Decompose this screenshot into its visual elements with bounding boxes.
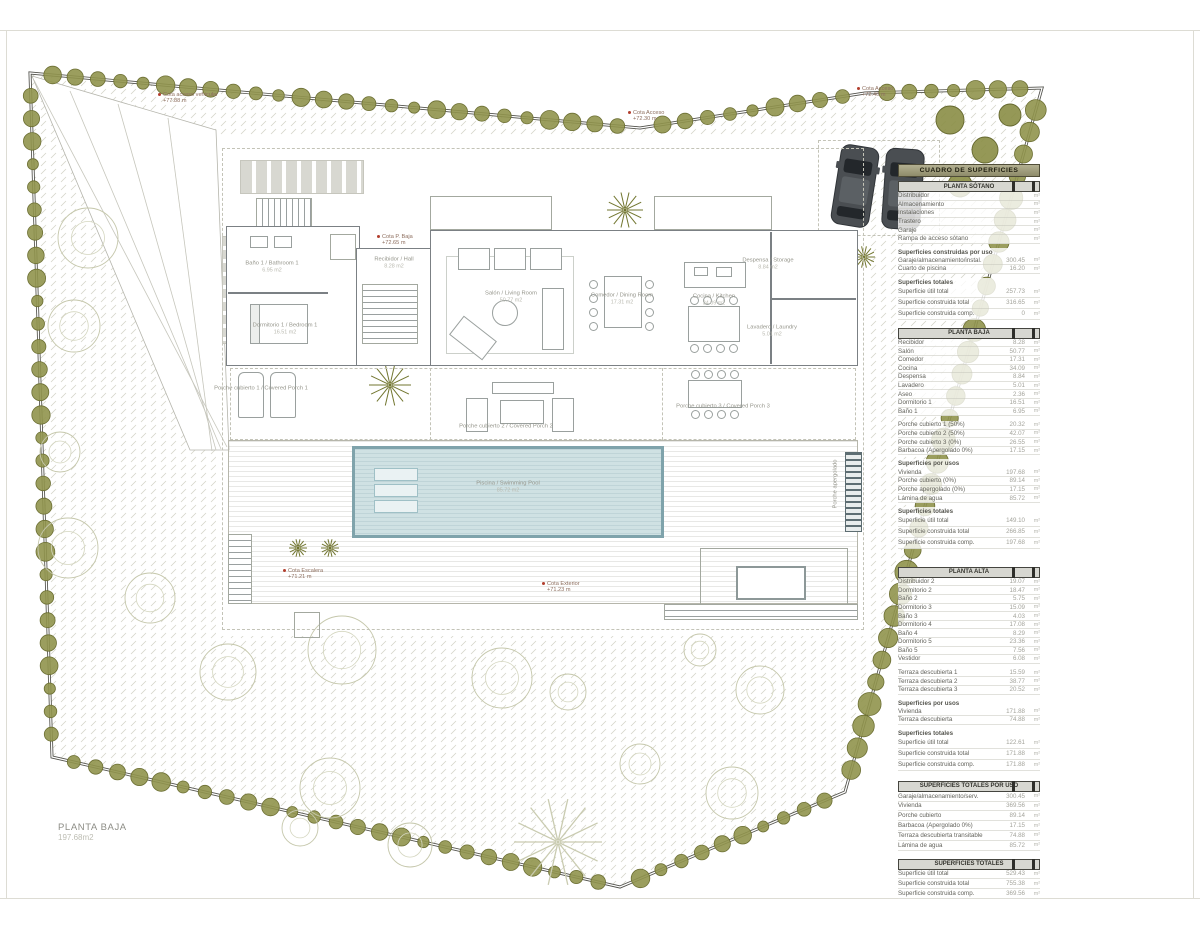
- row-value: 257.73: [995, 288, 1025, 295]
- sheet-edge-left: [6, 30, 7, 898]
- table-row: Dormitorio 523.36m²: [898, 638, 1040, 647]
- chair-icon: [589, 322, 598, 331]
- chair-icon: [730, 370, 739, 379]
- table-row: Terraza descubierta 115.59m²: [898, 669, 1040, 678]
- hedge-tree-icon: [521, 112, 533, 124]
- room-name: Cocina / Kitchen: [693, 293, 735, 300]
- row-value: 755.38: [995, 880, 1025, 887]
- row-label: Distribuidor 2: [898, 578, 995, 585]
- plan-title: PLANTA BAJA 197.68m2: [58, 822, 127, 842]
- row-value: 19.07: [995, 578, 1025, 585]
- room-label-apergolado: Porche apergolado: [833, 460, 840, 509]
- hedge-tree-icon: [474, 106, 489, 121]
- hedge-tree-icon: [817, 793, 832, 808]
- surfaces-table-title: CUADRO DE SUPERFICIES: [898, 164, 1040, 177]
- hedge-tree-icon: [694, 845, 709, 860]
- row-label: Lámina de agua: [898, 495, 995, 502]
- row-unit: m²: [1025, 340, 1040, 346]
- hedge-tree-icon: [339, 94, 354, 109]
- table-subheader: Superficies totales: [898, 729, 1040, 738]
- row-value: 85.72: [995, 495, 1025, 502]
- cota-marker-icon: [542, 582, 545, 585]
- row-value: 171.88: [995, 708, 1025, 715]
- row-unit: m²: [1025, 842, 1040, 848]
- hedge-tree-icon: [114, 74, 127, 87]
- row-value: 149.10: [995, 517, 1025, 524]
- tree-icon: [936, 106, 964, 134]
- row-unit: m²: [1025, 579, 1040, 585]
- row-label: Vivienda: [898, 469, 995, 476]
- hedge-tree-icon: [89, 760, 103, 774]
- hedge-tree-icon: [198, 785, 211, 798]
- chair-icon: [729, 344, 738, 353]
- row-unit: m²: [1025, 529, 1040, 535]
- table-row: Vestidor6.08m²: [898, 655, 1040, 664]
- row-value: 89.14: [995, 477, 1025, 484]
- cota-acceso-vehicular: Cota acceso vehicular+77.88 m: [158, 92, 218, 105]
- row-label: Superficie construida comp.: [898, 310, 995, 317]
- row-unit: m²: [1025, 656, 1040, 662]
- row-value: 18.47: [995, 587, 1025, 594]
- row-unit: m²: [1025, 793, 1040, 799]
- table-row: Superficie construida total316.65m²: [898, 298, 1040, 309]
- row-unit: m²: [1025, 813, 1040, 819]
- row-label: Superficie construida total: [898, 750, 995, 757]
- coffee-table: [492, 300, 518, 326]
- hedge-tree-icon: [44, 727, 58, 741]
- hedge-tree-icon: [747, 105, 758, 116]
- planter-box: [654, 196, 772, 230]
- room-name: Porche cubierto 3 / Covered Porch 3: [676, 404, 770, 411]
- row-unit: m²: [1025, 751, 1040, 757]
- row-value: 20.32: [995, 421, 1025, 428]
- hedge-tree-icon: [385, 99, 398, 112]
- chair-icon: [589, 308, 598, 317]
- row-label: Aseo: [898, 391, 995, 398]
- cota-acceso-1: Cota Acceso+72.30 m: [628, 110, 664, 123]
- table-section-header: PLANTA SÓTANO: [898, 181, 1040, 192]
- row-unit: m²: [1025, 219, 1040, 225]
- row-label: Garaje: [898, 227, 995, 234]
- chair-icon: [704, 410, 713, 419]
- row-unit: m²: [1025, 639, 1040, 645]
- row-unit: m²: [1025, 430, 1040, 436]
- interior-wall: [228, 292, 328, 294]
- row-value: 8.28: [995, 339, 1025, 346]
- row-unit: m²: [1025, 193, 1040, 199]
- room-name: Porche cubierto 1 / Covered Porch 1: [214, 386, 308, 393]
- row-label: Superficie útil total: [898, 517, 995, 524]
- table-row: Superficie construida total171.88m²: [898, 749, 1040, 760]
- chair-icon: [730, 410, 739, 419]
- pool-step: [374, 500, 418, 513]
- row-unit: m²: [1025, 236, 1040, 242]
- hedge-tree-icon: [1012, 81, 1028, 97]
- hedge-tree-icon: [564, 113, 581, 130]
- row-unit: m²: [1025, 478, 1040, 484]
- hedge-tree-icon: [90, 72, 105, 87]
- cota-marker-icon: [158, 93, 161, 96]
- chair-icon: [703, 344, 712, 353]
- table-row: Baño 16.95m²: [898, 408, 1040, 417]
- cota-escalera: Cota Escalera+71.21 m: [283, 568, 323, 581]
- sofa: [530, 248, 562, 270]
- row-value: 16.51: [995, 399, 1025, 406]
- row-unit: m²: [1025, 871, 1040, 877]
- row-label: Baño 1: [898, 408, 995, 415]
- stairwell: [362, 284, 418, 344]
- row-unit: m²: [1025, 622, 1040, 628]
- table-subheader: Superficies por usos: [898, 699, 1040, 708]
- tree-icon: [972, 137, 998, 163]
- row-value: 8.29: [995, 630, 1025, 637]
- room-label-cocina: Cocina / Kitchen34.09 m2: [693, 293, 735, 306]
- chair-icon: [690, 344, 699, 353]
- row-unit: m²: [1025, 613, 1040, 619]
- room-area: 8.84 m2: [742, 264, 793, 270]
- hedge-tree-icon: [32, 340, 46, 354]
- table-row: Vivienda171.88m²: [898, 708, 1040, 717]
- hedge-tree-icon: [28, 247, 45, 264]
- row-label: Comedor: [898, 356, 995, 363]
- table-row: Superficie útil total529.43m²: [898, 870, 1040, 880]
- hedge-tree-icon: [27, 159, 38, 170]
- row-unit: m²: [1025, 408, 1040, 414]
- row-unit: m²: [1025, 391, 1040, 397]
- table-row: Dormitorio 417.08m²: [898, 621, 1040, 630]
- sheet-edge-top: [0, 30, 1200, 31]
- shower: [330, 234, 356, 260]
- hedge-tree-icon: [587, 116, 603, 132]
- table-subheader: Superficies por usos: [898, 459, 1040, 468]
- hedge-tree-icon: [879, 628, 898, 647]
- table-row: Recibidor8.28m²: [898, 339, 1040, 348]
- row-label: Cocina: [898, 365, 995, 372]
- room-area: 34.09 m2: [693, 300, 735, 306]
- row-value: 17.15: [995, 822, 1025, 829]
- row-unit: m²: [1025, 670, 1040, 676]
- row-label: Porche cubierto: [898, 812, 995, 819]
- hedge-tree-icon: [631, 869, 650, 888]
- row-value: 171.88: [995, 761, 1025, 768]
- row-label: Dormitorio 5: [898, 638, 995, 645]
- row-value: 6.95: [995, 408, 1025, 415]
- table-row: Garajem²: [898, 226, 1040, 235]
- row-unit: m²: [1025, 740, 1040, 746]
- table-row: Distribuidor 219.07m²: [898, 578, 1040, 587]
- row-label: Superficie útil total: [898, 870, 995, 877]
- row-value: 74.88: [995, 716, 1025, 723]
- hedge-tree-icon: [591, 875, 606, 890]
- row-value: 17.31: [995, 356, 1025, 363]
- row-label: Porche cubierto 2 (50%): [898, 430, 995, 437]
- table-row: Lámina de agua85.72m²: [898, 841, 1040, 851]
- pool-step: [374, 484, 418, 497]
- hedge-tree-icon: [362, 97, 376, 111]
- row-unit: m²: [1025, 357, 1040, 363]
- row-label: Superficie construida comp.: [898, 890, 995, 897]
- hedge-tree-icon: [734, 826, 752, 844]
- floor-plan-sheet: { "sheet": {"title": "PLANTA BAJA", "are…: [0, 0, 1200, 927]
- table-row: Porche cubierto 2 (50%)42.07m²: [898, 430, 1040, 439]
- hedge-tree-icon: [241, 794, 257, 810]
- hedge-tree-icon: [292, 88, 310, 106]
- row-unit: m²: [1025, 300, 1040, 306]
- row-unit: m²: [1025, 495, 1040, 501]
- hedge-tree-icon: [273, 90, 285, 102]
- row-value: 16.20: [995, 265, 1025, 272]
- row-value: 369.56: [995, 890, 1025, 897]
- row-value: 17.15: [995, 486, 1025, 493]
- hedge-tree-icon: [67, 69, 83, 85]
- row-unit: m²: [1025, 518, 1040, 524]
- hedge-tree-icon: [1020, 122, 1039, 141]
- table-row: Aseo2.36m²: [898, 390, 1040, 399]
- hedge-tree-icon: [966, 81, 985, 100]
- table-row: Porche apergolado (0%)17.15m²: [898, 486, 1040, 495]
- row-value: 15.09: [995, 604, 1025, 611]
- cota-marker-icon: [377, 235, 380, 238]
- cota-marker-icon: [628, 111, 631, 114]
- chair-icon: [589, 280, 598, 289]
- room-label-lavadero: Lavadero / Laundry5.01 m2: [747, 324, 797, 337]
- row-unit: m²: [1025, 400, 1040, 406]
- room-area: 16.51 m2: [253, 329, 318, 335]
- room-label-bano1: Baño 1 / Bathroom 16.95 m2: [245, 260, 298, 273]
- hedge-tree-icon: [23, 111, 39, 127]
- hedge-tree-icon: [989, 81, 1006, 98]
- room-label-despensa: Despensa / Storage8.84 m2: [742, 257, 793, 270]
- porch-divider: [662, 368, 663, 440]
- table-subheader: Superficies totales: [898, 507, 1040, 516]
- row-label: Porche apergolado (0%): [898, 486, 995, 493]
- hedge-tree-icon: [428, 101, 446, 119]
- hedge-tree-icon: [44, 66, 62, 84]
- row-label: Rampa de acceso sótano: [898, 235, 995, 242]
- chair-icon: [645, 280, 654, 289]
- hedge-tree-icon: [23, 133, 41, 151]
- table-row: Porche cubierto 1 (50%)20.32m²: [898, 421, 1040, 430]
- hedge-tree-icon: [498, 109, 512, 123]
- row-label: Salón: [898, 348, 995, 355]
- service-pad: [294, 612, 320, 638]
- hedge-tree-icon: [40, 613, 55, 628]
- row-unit: m²: [1025, 257, 1040, 263]
- row-label: Baño 5: [898, 647, 995, 654]
- row-unit: m²: [1025, 678, 1040, 684]
- table-row: Instalacionesm²: [898, 209, 1040, 218]
- row-label: Superficie construida comp.: [898, 539, 995, 546]
- hedge-tree-icon: [44, 683, 55, 694]
- table-row: Lámina de agua85.72m²: [898, 494, 1040, 503]
- hedge-tree-icon: [502, 854, 519, 871]
- sheet-edge-right: [1193, 30, 1194, 898]
- hedge-tree-icon: [177, 781, 189, 793]
- room-area: 50.77 m2: [485, 297, 537, 303]
- sink: [716, 267, 732, 277]
- row-label: Superficie útil total: [898, 739, 995, 746]
- hedge-tree-icon: [868, 674, 884, 690]
- row-label: Trastero: [898, 218, 995, 225]
- table-row: Terraza descubierta transitable74.88m²: [898, 831, 1040, 841]
- table-row: Vivienda197.68m²: [898, 468, 1040, 477]
- row-value: 50.77: [995, 348, 1025, 355]
- table-row: Superficie construida comp.0m²: [898, 309, 1040, 320]
- room-name: Baño 1 / Bathroom 1: [245, 260, 298, 267]
- row-unit: m²: [1025, 486, 1040, 492]
- chair-icon: [691, 370, 700, 379]
- row-unit: m²: [1025, 383, 1040, 389]
- hedge-tree-icon: [677, 113, 693, 129]
- pool-step: [374, 468, 418, 481]
- row-label: Porche cubierto (0%): [898, 477, 995, 484]
- row-unit: m²: [1025, 439, 1040, 445]
- table-row: Terraza descubierta 320.52m²: [898, 686, 1040, 695]
- cota-acceso-2: Cota Acceso+72.40 m: [857, 86, 893, 99]
- row-label: Baño 2: [898, 595, 995, 602]
- hedge-tree-icon: [758, 821, 769, 832]
- hedge-tree-icon: [262, 798, 280, 816]
- row-value: 5.01: [995, 382, 1025, 389]
- hedge-tree-icon: [36, 454, 49, 467]
- row-value: 74.88: [995, 832, 1025, 839]
- palm-center: [556, 840, 559, 843]
- cota-p-baja: Cota P. Baja+72.65 m: [377, 234, 413, 247]
- row-unit: m²: [1025, 448, 1040, 454]
- row-unit: m²: [1025, 365, 1040, 371]
- room-label-comedor: Comedor / Dining Room17.31 m2: [591, 292, 653, 305]
- table-row: Superficie construida comp.369.56m²: [898, 889, 1040, 899]
- table-row: Distribuidorm²: [898, 192, 1040, 201]
- row-label: Superficie construida total: [898, 299, 995, 306]
- hedge-tree-icon: [675, 854, 688, 867]
- table-row: Barbacoa (Apergolado 0%)17.15m²: [898, 447, 1040, 456]
- table-row: Baño 48.29m²: [898, 629, 1040, 638]
- hedge-tree-icon: [700, 110, 714, 124]
- row-unit: m²: [1025, 708, 1040, 714]
- hedge-tree-icon: [481, 849, 497, 865]
- chair-icon: [704, 370, 713, 379]
- table-row: Superficie útil total149.10m²: [898, 516, 1040, 527]
- row-value: 529.43: [995, 870, 1025, 877]
- table-row: Vivienda369.56m²: [898, 802, 1040, 812]
- room-area: 5.01 m2: [747, 331, 797, 337]
- hedge-tree-icon: [315, 91, 332, 108]
- table-row: Garaje/almacenamiento/instal.300.45m²: [898, 257, 1040, 266]
- room-label-porche1: Porche cubierto 1 / Covered Porch 1: [214, 386, 308, 393]
- cota-marker-icon: [857, 87, 860, 90]
- hedge-tree-icon: [28, 269, 46, 287]
- row-value: 2.36: [995, 391, 1025, 398]
- hob: [694, 267, 708, 276]
- row-unit: m²: [1025, 891, 1040, 897]
- hedge-tree-icon: [110, 764, 126, 780]
- row-value: 85.72: [995, 842, 1025, 849]
- hedge-tree-icon: [873, 651, 891, 669]
- chair-icon: [691, 410, 700, 419]
- hedge-tree-icon: [28, 203, 42, 217]
- row-value: 5.75: [995, 595, 1025, 602]
- hedge-tree-icon: [131, 768, 148, 785]
- table-row: Salón50.77m²: [898, 347, 1040, 356]
- row-unit: m²: [1025, 227, 1040, 233]
- hedge-tree-icon: [371, 824, 388, 841]
- table-row: Terraza descubierta74.88m²: [898, 716, 1040, 725]
- room-name: Piscina / Swimming Pool: [476, 480, 539, 487]
- cota-value: +71.21 m: [283, 574, 323, 580]
- row-label: Instalaciones: [898, 209, 995, 216]
- hedge-tree-icon: [32, 362, 48, 378]
- row-unit: m²: [1025, 422, 1040, 428]
- row-label: Terraza descubierta 2: [898, 678, 995, 685]
- row-unit: m²: [1025, 630, 1040, 636]
- row-unit: m²: [1025, 201, 1040, 207]
- hedge-tree-icon: [724, 108, 737, 121]
- table-row: Superficie construida total755.38m²: [898, 879, 1040, 889]
- row-unit: m²: [1025, 762, 1040, 768]
- chair-icon: [717, 410, 726, 419]
- row-value: 300.45: [995, 257, 1025, 264]
- hedge-tree-icon: [1025, 100, 1046, 121]
- table-section-header: PLANTA ALTA: [898, 567, 1040, 578]
- row-unit: m²: [1025, 717, 1040, 723]
- lower-steps: [664, 604, 858, 620]
- hedge-tree-icon: [32, 295, 43, 306]
- row-unit: m²: [1025, 596, 1040, 602]
- plan-title-area: 197.68m2: [58, 833, 127, 842]
- row-unit: m²: [1025, 604, 1040, 610]
- row-unit: m²: [1025, 587, 1040, 593]
- hedge-tree-icon: [32, 317, 45, 330]
- row-label: Dormitorio 3: [898, 604, 995, 611]
- hedge-tree-icon: [350, 819, 365, 834]
- row-unit: m²: [1025, 540, 1040, 546]
- hedge-tree-icon: [23, 88, 38, 103]
- hedge-tree-icon: [570, 870, 583, 883]
- hedge-tree-icon: [853, 715, 875, 737]
- pergola: [845, 452, 862, 532]
- hedge-tree-icon: [1015, 145, 1033, 163]
- hedge-tree-icon: [32, 406, 50, 424]
- room-name: Salón / Living Room: [485, 290, 537, 297]
- row-value: 369.56: [995, 802, 1025, 809]
- row-value: 4.03: [995, 613, 1025, 620]
- pavers-top: [240, 160, 364, 194]
- table-row: Baño 34.03m²: [898, 612, 1040, 621]
- table-row: Superficie construida comp.197.68m²: [898, 538, 1040, 549]
- row-label: Garaje/almacenamiento/instal.: [898, 257, 995, 264]
- row-label: Terraza descubierta transitable: [898, 832, 995, 839]
- table-row: Almacenamientom²: [898, 201, 1040, 210]
- hedge-tree-icon: [36, 498, 52, 514]
- room-name: Despensa / Storage: [742, 257, 793, 264]
- table-row: Porche cubierto 3 (0%)26.55m²: [898, 438, 1040, 447]
- row-unit: m²: [1025, 647, 1040, 653]
- row-value: 266.85: [995, 528, 1025, 535]
- row-value: 122.61: [995, 739, 1025, 746]
- hedge-tree-icon: [847, 738, 867, 758]
- faint-tree-inner: [290, 818, 310, 838]
- row-value: 23.36: [995, 638, 1025, 645]
- row-value: 0: [995, 310, 1025, 317]
- table-row: Baño 57.56m²: [898, 647, 1040, 656]
- row-value: 89.14: [995, 812, 1025, 819]
- row-label: Vestidor: [898, 655, 995, 662]
- table-row: Superficie construida comp.171.88m²: [898, 760, 1040, 771]
- table-subheader: Superficies construidas por uso: [898, 248, 1040, 257]
- row-unit: m²: [1025, 210, 1040, 216]
- room-label-salon: Salón / Living Room50.77 m2: [485, 290, 537, 303]
